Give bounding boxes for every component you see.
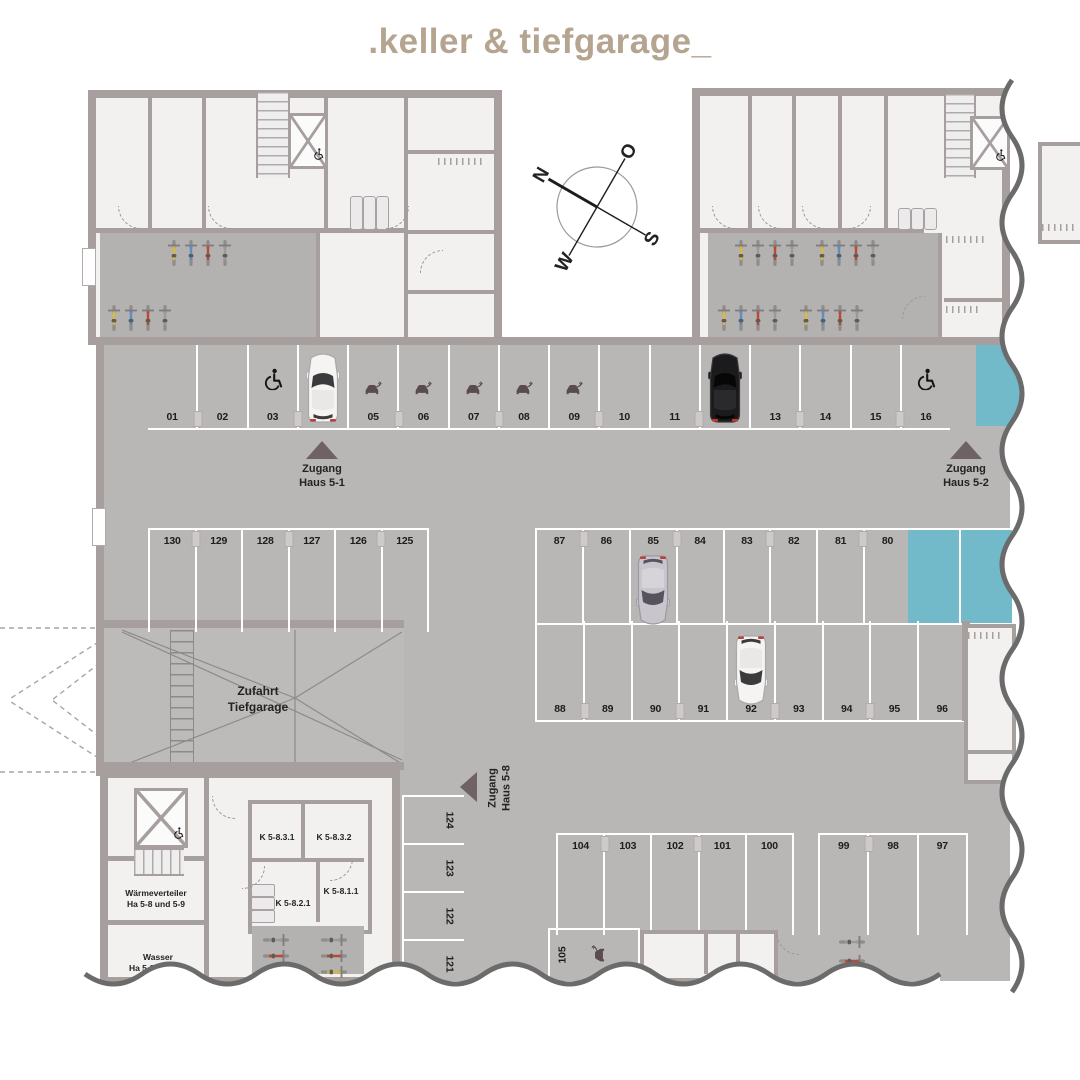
spot-number: 130 [150,535,195,547]
bicycle-icon [201,239,215,267]
spot-number: 98 [869,840,916,852]
parking-spot-129[interactable]: 129 [195,530,242,632]
wall-stub [580,703,589,719]
parking-row-mid-left: 130129128127126125 [148,528,429,632]
bicycle-icon [816,304,830,332]
parking-spot-08[interactable]: 08 [498,345,548,428]
wall-stub [864,836,873,852]
parking-spot-123[interactable]: 123 [404,843,464,891]
spot-number: 87 [537,535,582,547]
spot-number: 126 [336,535,381,547]
parking-spot-99[interactable]: 99 [820,835,867,935]
parking-spot-05[interactable]: 05 [347,345,397,428]
bicycle-icon [320,949,348,963]
parking-spot-94[interactable]: 94 [822,621,870,720]
bicycle-icon [751,304,765,332]
spot-number: 05 [349,411,397,423]
bicycle-icon [734,239,748,267]
wall-stub [672,531,681,547]
bicycle-icon [838,954,866,968]
spot-number: 09 [550,411,598,423]
parking-spot-03[interactable]: 03 [247,345,297,428]
parking-spot-124[interactable]: 124 [404,797,464,843]
car-top-view-black [707,348,743,426]
parking-spot-15[interactable]: 15 [850,345,900,428]
parking-spot-13[interactable]: 13 [749,345,799,428]
compass-south: S [640,228,665,249]
bicycle-icon [320,965,348,979]
spot-number: 80 [865,535,910,547]
bicycle-icon [158,304,172,332]
parking-spot-91[interactable]: 91 [678,621,726,720]
spot-number: 81 [818,535,863,547]
spot-number: 86 [584,535,629,547]
parking-spot-04[interactable]: 04 [297,345,347,428]
parking-spot-09[interactable]: 09 [548,345,598,428]
bicycle-icon [768,304,782,332]
parking-spot-reserved[interactable] [976,345,1022,426]
right-edge-rooms [964,624,1016,754]
wall-stub [695,411,704,427]
wheelchair-icon [313,147,324,165]
spot-number: 14 [801,411,849,423]
ramp-wall-bottom [104,762,404,770]
parking-row-top: 01020304050607080910111213141516 [148,345,950,430]
parking-spot-93[interactable]: 93 [774,621,822,720]
stairs-bottom-left [134,848,184,876]
room-label-k832: K 5-8.3.2 [306,832,362,843]
bicycle-icon [320,933,348,947]
parking-spot-80[interactable]: 80 [863,530,910,623]
parking-spot-105-box: 105 [548,928,640,980]
spot-number: 105 [556,947,568,964]
spot-number: 10 [600,411,648,423]
bicycle-icon [218,239,232,267]
parking-spot-125[interactable]: 125 [381,530,428,632]
spot-number: 88 [537,703,583,715]
parking-spot-92[interactable]: 92 [726,621,774,720]
ramp-label: Zufahrt Tiefgarage [188,684,328,715]
spot-number: 127 [290,535,335,547]
wheelchair-icon [995,148,1006,166]
parking-row-mid-right-lower: 888990919293949596 [535,621,967,722]
wall-stub [895,411,904,427]
ev-icon [565,382,584,401]
bicycle-icon [262,965,290,979]
ramp-wall-left [96,620,104,776]
right-edge-room-small [964,750,1016,784]
parking-spot-98[interactable]: 98 [867,835,916,935]
parking-spot-07[interactable]: 07 [448,345,498,428]
spot-number: 121 [444,956,456,973]
car-top-view-white [305,348,341,426]
ev-icon [414,382,433,401]
spot-number: 02 [198,411,246,423]
spot-number: 15 [852,411,900,423]
parking-spot-02[interactable]: 02 [196,345,246,428]
parking-spot-103[interactable]: 103 [603,835,650,935]
entrance-label-haus-5-2: Zugang Haus 5-2 [916,462,1016,491]
parking-spot-121[interactable]: 121 [404,939,464,987]
spot-number: 99 [820,840,867,852]
car-top-view-white [733,632,769,710]
parking-spot-11[interactable]: 11 [649,345,699,428]
entrance-arrow-haus-5-1 [306,441,338,459]
bicycle-icon [849,239,863,267]
elevator-bottom-left [134,788,188,848]
spot-number: 13 [751,411,799,423]
spot-number: 91 [680,703,726,715]
wall-stub [294,411,303,427]
bicycle-icon [785,239,799,267]
wall-stub [394,411,403,427]
parking-spot-12[interactable]: 12 [699,345,749,428]
wall-stub [579,531,588,547]
spot-number: 129 [197,535,242,547]
parking-spot-97[interactable]: 97 [917,835,966,935]
parking-spot-84[interactable]: 84 [676,530,723,623]
parking-spot-14[interactable]: 14 [799,345,849,428]
parking-spot-128[interactable]: 128 [241,530,288,632]
room-label-wasser: Wasser Ha 5-8 und 5-9 [108,952,208,974]
spot-number: 95 [871,703,917,715]
car-top-view-silver [635,552,671,630]
parking-spot-reserved[interactable] [959,530,1012,623]
wall-stub [859,531,868,547]
parking-spot-88[interactable]: 88 [537,621,583,720]
wall-stub [694,836,703,852]
spot-number: 103 [605,840,650,852]
spot-number: 125 [383,535,428,547]
parking-spot-95[interactable]: 95 [869,621,917,720]
wall-stub [192,531,201,547]
parking-row-bottom-b: 999897 [818,833,968,935]
room-label-k821: K 5-8.2.1 [268,898,318,909]
parking-spot-87[interactable]: 87 [537,530,582,623]
parking-spot-100[interactable]: 100 [745,835,792,935]
bicycle-icon [850,304,864,332]
spot-number: 93 [776,703,822,715]
spot-number: 102 [652,840,697,852]
elevator-top-left [288,113,328,169]
spot-number: 03 [249,411,297,423]
spot-number: 124 [444,812,456,829]
wall-stub [770,703,779,719]
spot-number: 01 [148,411,196,423]
bicycle-icon [799,304,813,332]
bicycle-icon [262,949,290,963]
room-label-k811: K 5-8.1.1 [318,886,364,897]
parking-spot-101[interactable]: 101 [698,835,745,935]
ev-icon [514,382,533,401]
bicycle-icon [832,239,846,267]
spot-number: 90 [633,703,679,715]
parking-spot-126[interactable]: 126 [334,530,381,632]
parking-spot-reserved[interactable] [908,530,959,623]
wall-stub [865,703,874,719]
spot-number: 08 [500,411,548,423]
entrance-arrow-haus-5-2 [950,441,982,459]
spot-number: 83 [725,535,770,547]
parking-spot-10[interactable]: 10 [598,345,648,428]
parking-column-left: 124123122121 [402,795,464,987]
spot-number: 128 [243,535,288,547]
spot-number: 97 [919,840,966,852]
bicycle-icon [751,239,765,267]
bicycle-icon [734,304,748,332]
parking-spot-reserved-top [976,345,1022,426]
spot-number: 06 [399,411,447,423]
spot-number: 123 [444,860,456,877]
spot-number: 16 [902,411,950,423]
parking-spot-81[interactable]: 81 [816,530,863,623]
parking-spot-89[interactable]: 89 [583,621,631,720]
bicycle-icon [838,973,866,987]
spot-number: 85 [631,535,676,547]
parking-spots-reserved-mid [908,528,1012,625]
bicycle-icon [833,304,847,332]
wheelchair-icon [262,368,283,396]
parking-spot-83[interactable]: 83 [723,530,770,623]
page-title: .keller & tiefgarage_ [0,22,1080,62]
spot-number: 101 [700,840,745,852]
parking-spot-82[interactable]: 82 [769,530,816,623]
spot-number: 94 [824,703,870,715]
wall-stub [795,411,804,427]
bicycle-icon [768,239,782,267]
parking-spot-01[interactable]: 01 [148,345,196,428]
entrance-arrow-haus-5-8 [460,772,477,802]
parking-spot-16[interactable]: 16 [900,345,950,428]
ev-icon [464,382,483,401]
wall-stub [494,411,503,427]
spot-number: 122 [444,908,456,925]
spot-number: 89 [585,703,631,715]
spot-number: 11 [651,411,699,423]
room-label-waermeverteiler: Wärmeverteiler Ha 5-8 und 5-9 [106,888,206,910]
parking-row-mid-right-upper: 8786858483828180 [535,528,910,625]
bicycle-icon [107,304,121,332]
wall-stub [284,531,293,547]
parking-spot-85[interactable]: 85 [629,530,676,623]
parking-spot-105[interactable]: 105 [550,930,638,980]
compass-west: W [551,249,578,275]
bicycle-icon [717,304,731,332]
wall-stub [194,411,203,427]
wall-stub [600,836,609,852]
bicycle-icon [815,239,829,267]
wheelchair-icon [915,368,936,396]
compass-rose: N O S W [522,132,672,282]
bicycle-icon [167,239,181,267]
entrance-label-haus-5-8: Zugang Haus 5-8 [486,738,515,838]
bicycle-icon [184,239,198,267]
parking-spot-86[interactable]: 86 [582,530,629,623]
wall-stub [766,531,775,547]
stairs-top-left [256,92,290,178]
window-slot [92,508,106,546]
wall-stub [675,703,684,719]
wheelchair-icon [173,826,184,844]
bicycle-icon [838,935,866,949]
parking-spot-130[interactable]: 130 [150,530,195,632]
parking-spot-104[interactable]: 104 [558,835,603,935]
parking-spot-122[interactable]: 122 [404,891,464,939]
parking-spot-127[interactable]: 127 [288,530,335,632]
compass-east: O [616,140,642,163]
bicycle-icon [124,304,138,332]
window-slot [82,248,96,286]
entrance-label-haus-5-1: Zugang Haus 5-1 [272,462,372,491]
spot-number: 100 [747,840,792,852]
ev-icon [592,945,611,964]
wall-stub [376,531,385,547]
compass-north: N [529,164,554,186]
parking-spot-06[interactable]: 06 [397,345,447,428]
parking-spot-102[interactable]: 102 [650,835,697,935]
parking-spot-96[interactable]: 96 [917,621,965,720]
floor-plan: Zufahrt Tiefgarage 010203040506070809101… [0,0,1080,1080]
spot-number: 82 [771,535,816,547]
elevator-top-right [970,116,1010,170]
parking-row-bottom-a: 104103102101100 [556,833,794,935]
spot-number: 96 [919,703,965,715]
parking-spot-90[interactable]: 90 [631,621,679,720]
spot-number: 07 [450,411,498,423]
bicycle-icon [141,304,155,332]
spot-number: 104 [558,840,603,852]
bottom-rooms [640,930,778,982]
wall-stub [595,411,604,427]
bicycle-icon [866,239,880,267]
wall-top-middle [502,337,692,345]
spot-number: 84 [678,535,723,547]
bicycle-icon [262,933,290,947]
room-label-k831: K 5-8.3.1 [250,832,304,843]
outer-wall-left [96,345,104,630]
ev-icon [364,382,383,401]
